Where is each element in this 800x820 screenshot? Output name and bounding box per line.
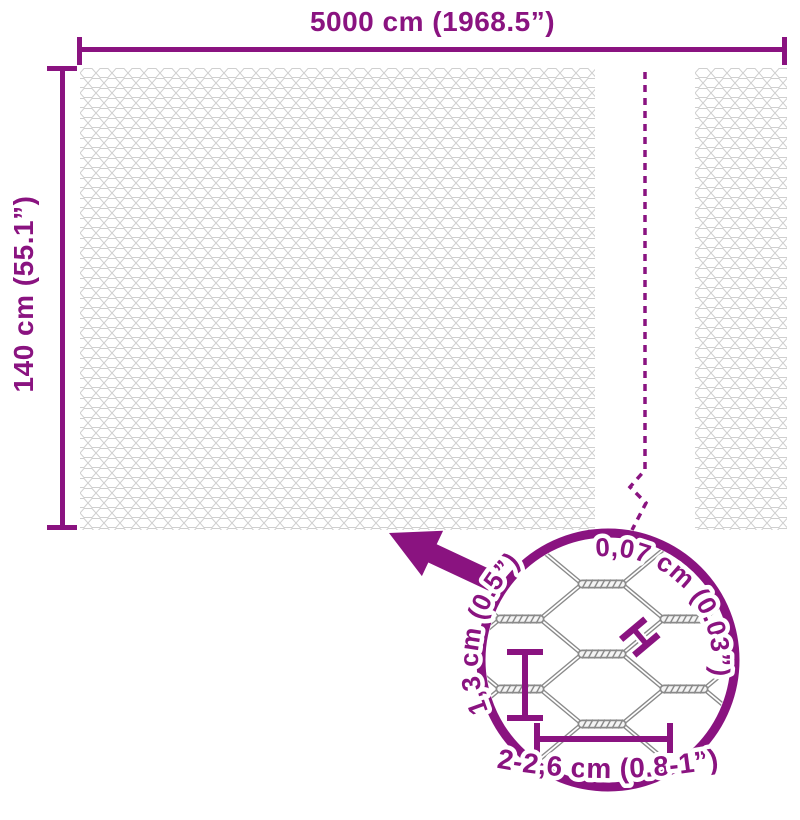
height-dimension-label: 140 cm (55.1”)	[8, 174, 40, 414]
width-dimension-label: 5000 cm (1968.5”)	[80, 6, 785, 38]
mesh-panel-left	[80, 68, 595, 530]
height-dimension-cap-bottom	[47, 525, 77, 530]
width-dimension-cap-right	[782, 37, 787, 65]
magnifier-detail: 0,07 cm (0.03”) 1,3 cm (0.5”) 2-2,6 cm (…	[448, 500, 768, 820]
mesh-panel-right	[695, 68, 787, 530]
cell-width-label: 2-2,6 cm (0.8-1”)	[495, 743, 721, 784]
height-dimension-line	[60, 68, 65, 528]
length-break-line	[625, 65, 665, 535]
width-dimension-cap-left	[77, 37, 82, 65]
product-dimension-diagram: 5000 cm (1968.5”) 140 cm (55.1”)	[0, 0, 800, 800]
height-dimension-cap-top	[47, 66, 77, 71]
width-dimension-line	[80, 47, 785, 52]
